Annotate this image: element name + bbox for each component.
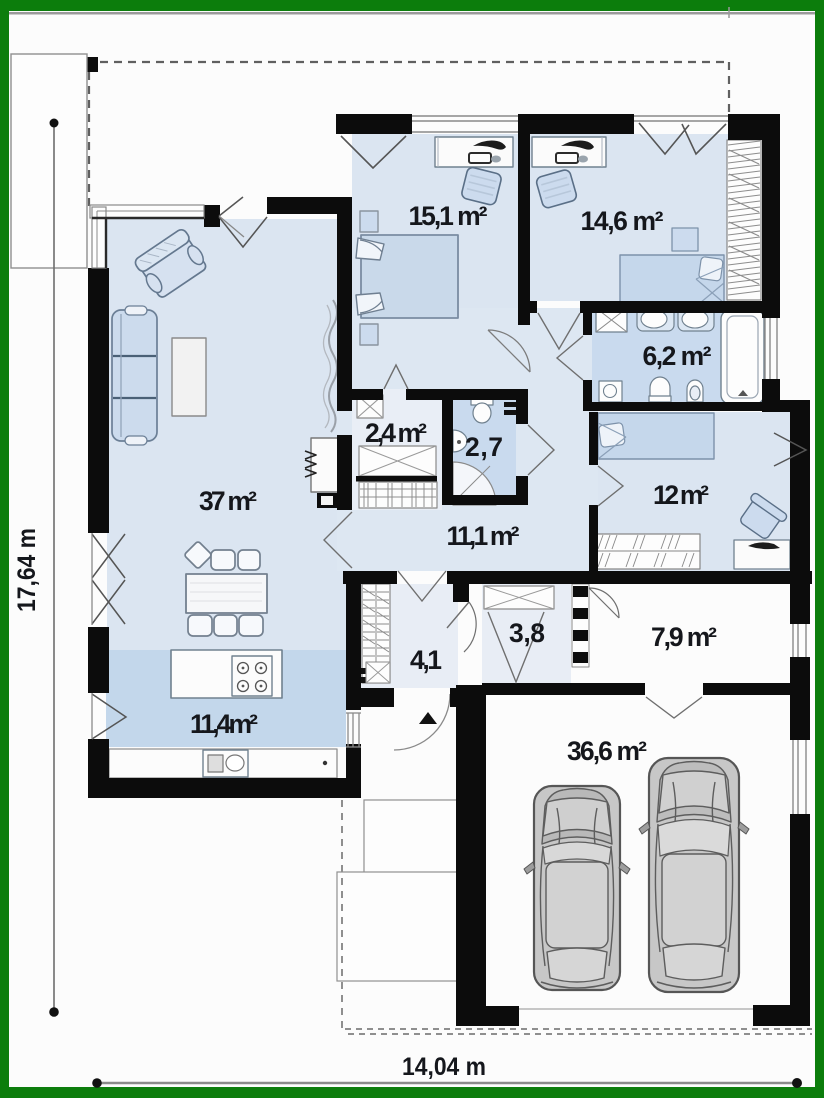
svg-text:11,4m²: 11,4m² bbox=[190, 709, 258, 739]
svg-text:36,6 m²: 36,6 m² bbox=[567, 736, 647, 766]
svg-text:11,1 m²: 11,1 m² bbox=[447, 521, 520, 551]
svg-text:3,8: 3,8 bbox=[509, 618, 545, 648]
svg-text:14,04 m: 14,04 m bbox=[402, 1053, 486, 1081]
svg-text:4,1: 4,1 bbox=[410, 645, 442, 675]
svg-text:17,64 m: 17,64 m bbox=[13, 528, 41, 612]
svg-text:7,9 m²: 7,9 m² bbox=[651, 622, 717, 652]
svg-text:2,7: 2,7 bbox=[465, 432, 503, 462]
svg-text:15,1 m²: 15,1 m² bbox=[409, 201, 488, 231]
svg-text:37 m²: 37 m² bbox=[199, 486, 257, 516]
svg-text:6,2 m²: 6,2 m² bbox=[643, 341, 712, 371]
svg-text:14,6 m²: 14,6 m² bbox=[581, 206, 664, 236]
svg-text:12 m²: 12 m² bbox=[653, 480, 709, 510]
svg-text:2,4 m²: 2,4 m² bbox=[365, 418, 427, 448]
